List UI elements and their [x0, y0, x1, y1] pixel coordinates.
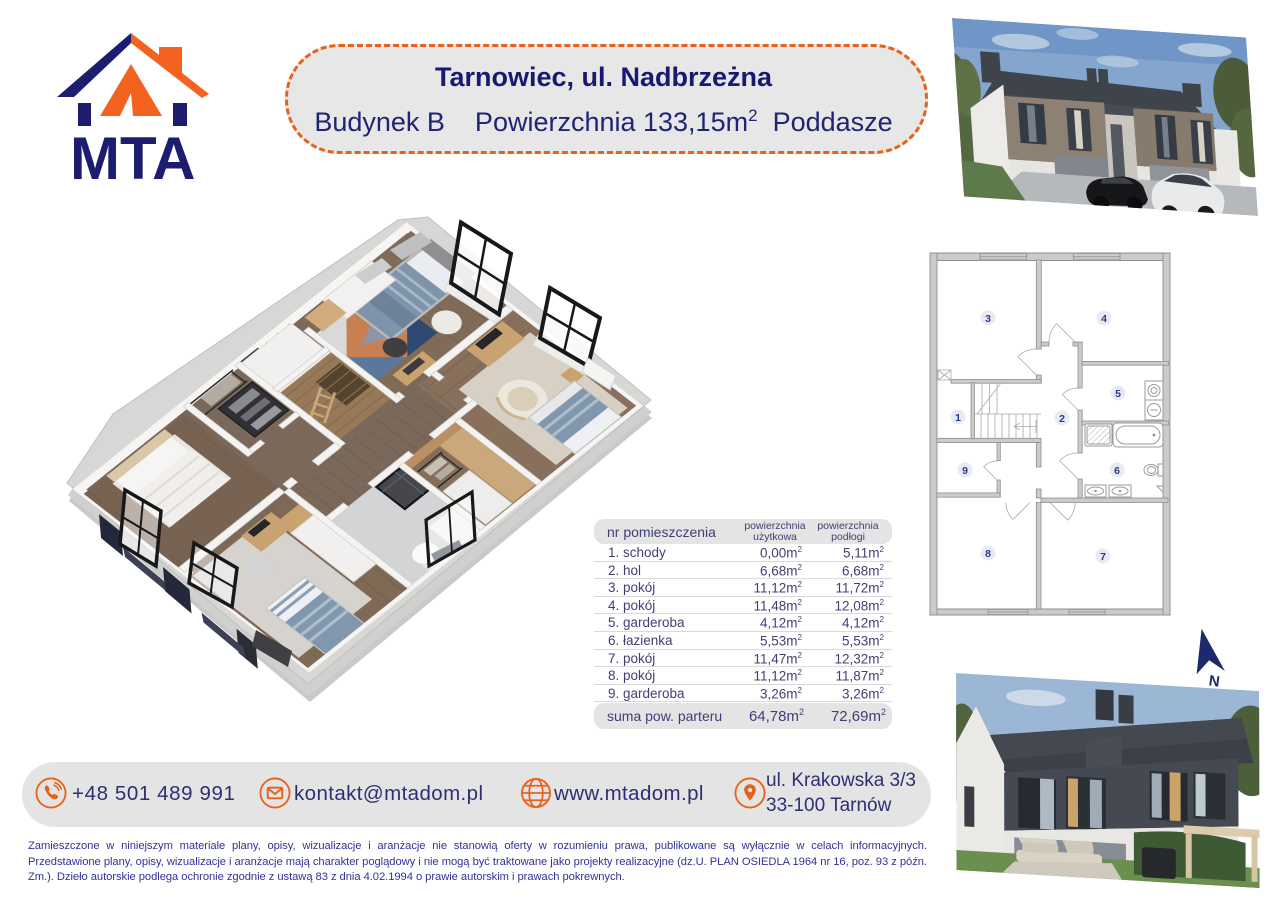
- svg-text:6: 6: [1114, 465, 1120, 477]
- svg-text:5: 5: [1115, 388, 1121, 400]
- svg-text:1: 1: [955, 412, 961, 424]
- svg-text:N: N: [1208, 672, 1221, 689]
- svg-text:2: 2: [1059, 413, 1065, 425]
- svg-text:3: 3: [985, 313, 991, 325]
- svg-text:4: 4: [1101, 313, 1107, 325]
- svg-text:9: 9: [962, 465, 968, 477]
- svg-text:8: 8: [985, 548, 991, 560]
- svg-text:MTA: MTA: [70, 125, 196, 187]
- svg-text:7: 7: [1100, 551, 1106, 563]
